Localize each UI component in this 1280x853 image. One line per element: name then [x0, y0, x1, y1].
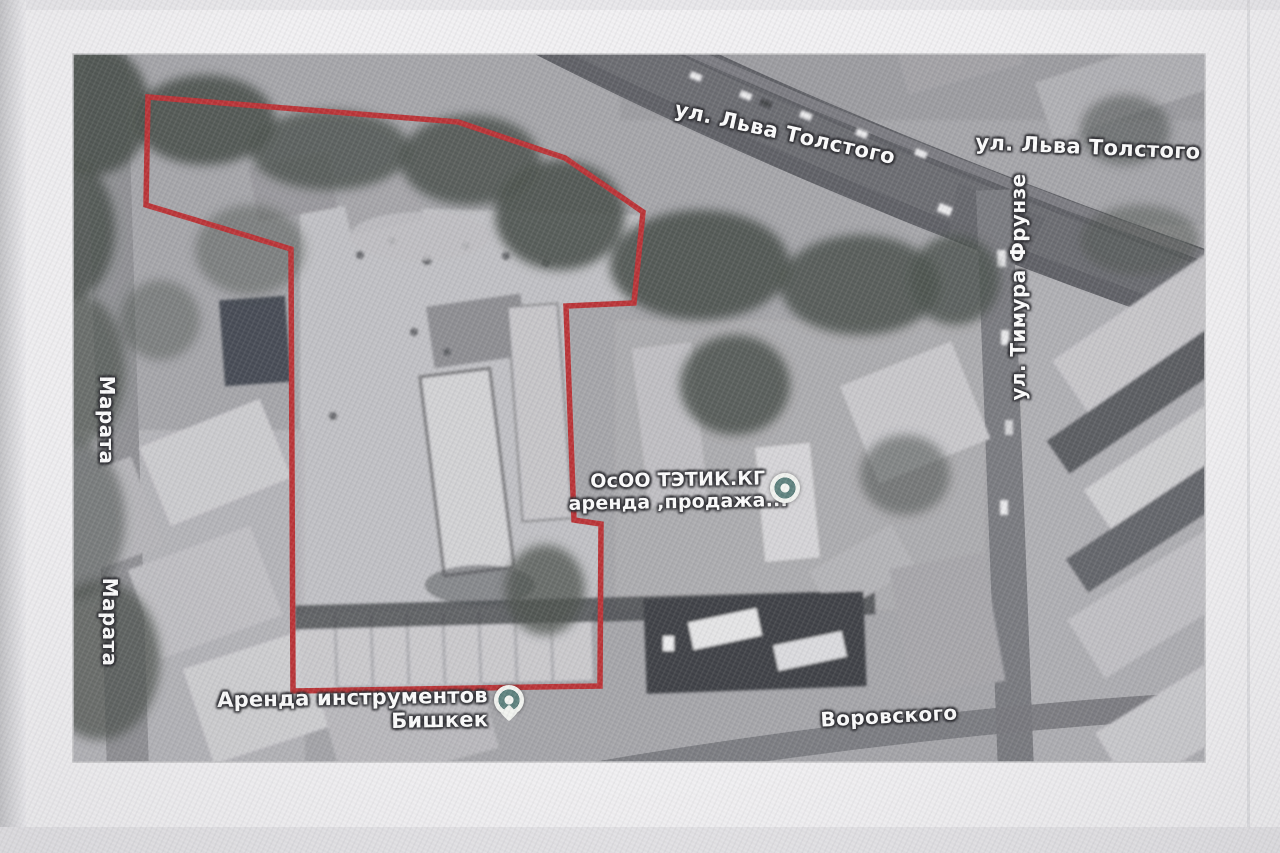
- poi-dot-icon[interactable]: [770, 473, 800, 503]
- street-label-marata-upper: Марата: [95, 376, 119, 465]
- street-label-timura-frunze: ул. Тимура Фрунзе: [1006, 173, 1030, 400]
- poi-tetik-line2: аренда ,продажа...: [568, 489, 788, 515]
- street-label-marata-lower: Марата: [98, 578, 122, 667]
- poi-label-arenda-instrumentov[interactable]: Аренда инструментов Бишкек: [217, 683, 488, 736]
- photographed-map-screenshot: { "photo": { "background_color": "#f2f1f…: [0, 0, 1280, 853]
- poi-arenda-line2: Бишкек: [217, 708, 488, 737]
- satellite-map[interactable]: [0, 0, 1280, 853]
- poi-label-tetik[interactable]: ОсОО ТЭТИК.КГ аренда ,продажа...: [568, 467, 788, 515]
- poi-pin-icon[interactable]: [494, 685, 524, 715]
